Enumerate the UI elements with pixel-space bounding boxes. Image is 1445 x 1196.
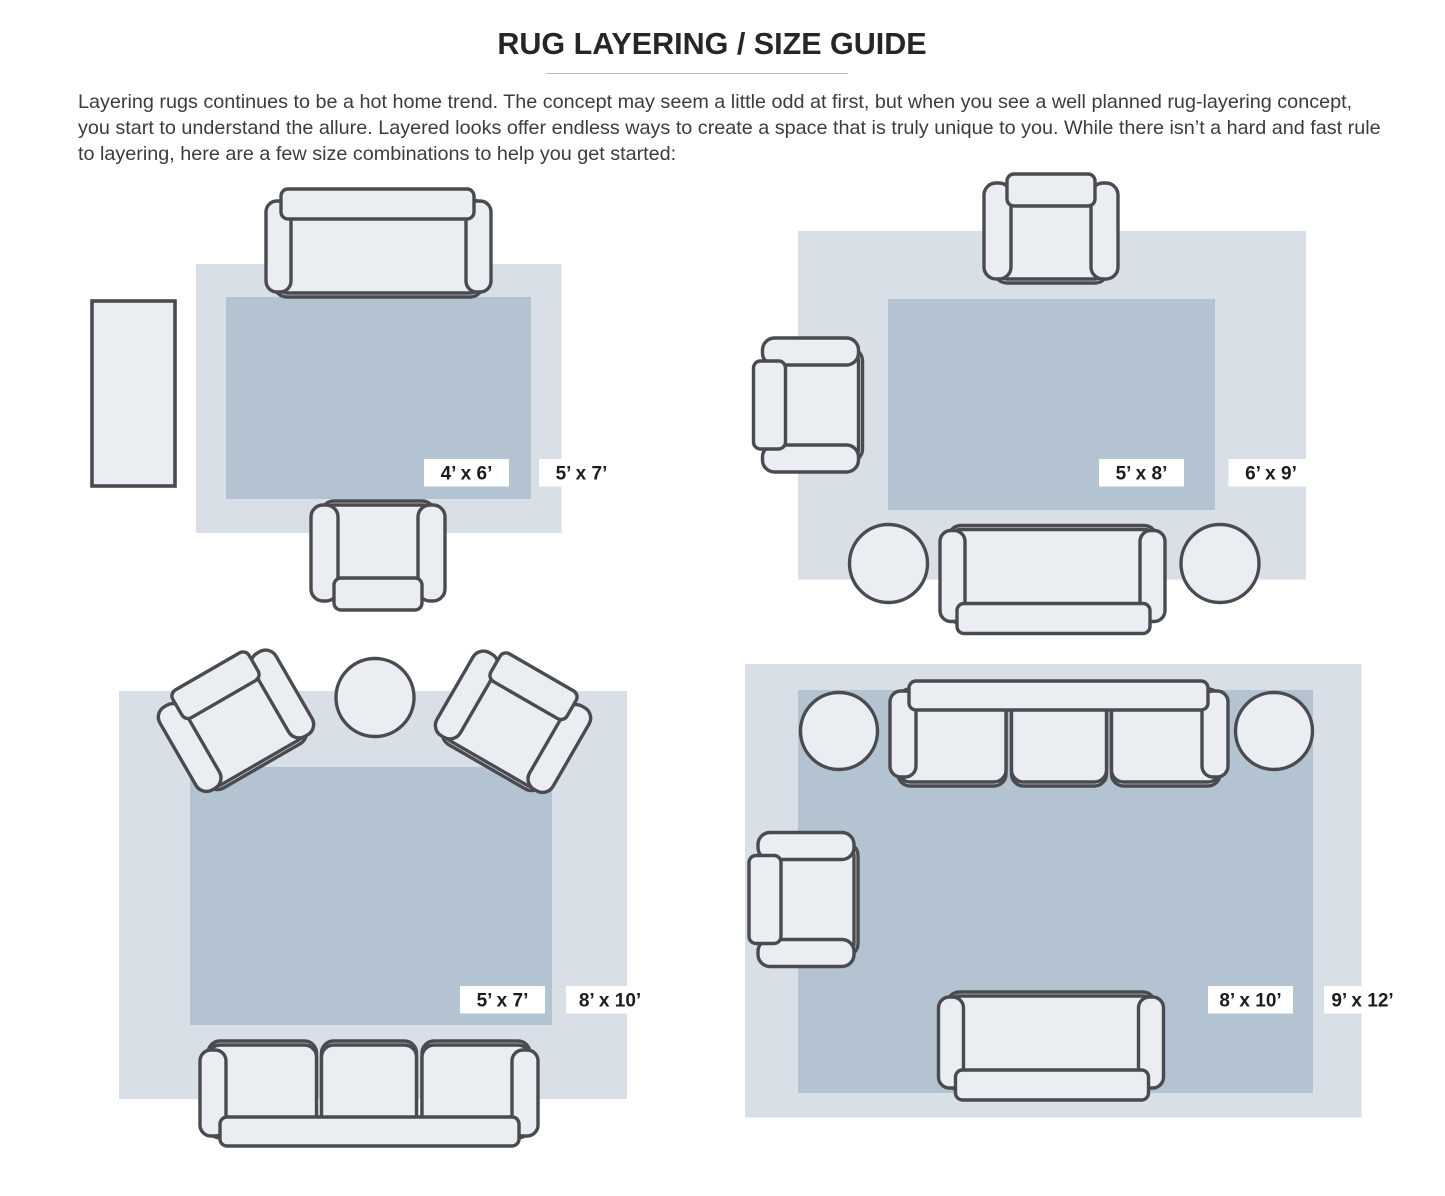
svg-text:8’ x 10’: 8’ x 10’	[579, 991, 641, 1012]
svg-text:9’ x 12’: 9’ x 12’	[1331, 991, 1393, 1012]
svg-text:8’ x 10’: 8’ x 10’	[1219, 991, 1281, 1012]
svg-text:4’ x 6’: 4’ x 6’	[441, 464, 493, 485]
svg-text:6’ x 9’: 6’ x 9’	[1245, 464, 1297, 485]
svg-text:Layering rugs continues to be: Layering rugs continues to be a hot home…	[78, 91, 1352, 113]
svg-text:RUG LAYERING / SIZE GUIDE: RUG LAYERING / SIZE GUIDE	[497, 27, 926, 61]
svg-text:you start to understand the al: you start to understand the allure. Laye…	[78, 117, 1381, 139]
svg-text:5’ x 7’: 5’ x 7’	[477, 991, 529, 1012]
svg-text:5’ x 8’: 5’ x 8’	[1116, 464, 1168, 485]
svg-text:5’ x 7’: 5’ x 7’	[556, 464, 608, 485]
svg-text:to layering, here are a few si: to layering, here are a few size combina…	[78, 143, 676, 165]
